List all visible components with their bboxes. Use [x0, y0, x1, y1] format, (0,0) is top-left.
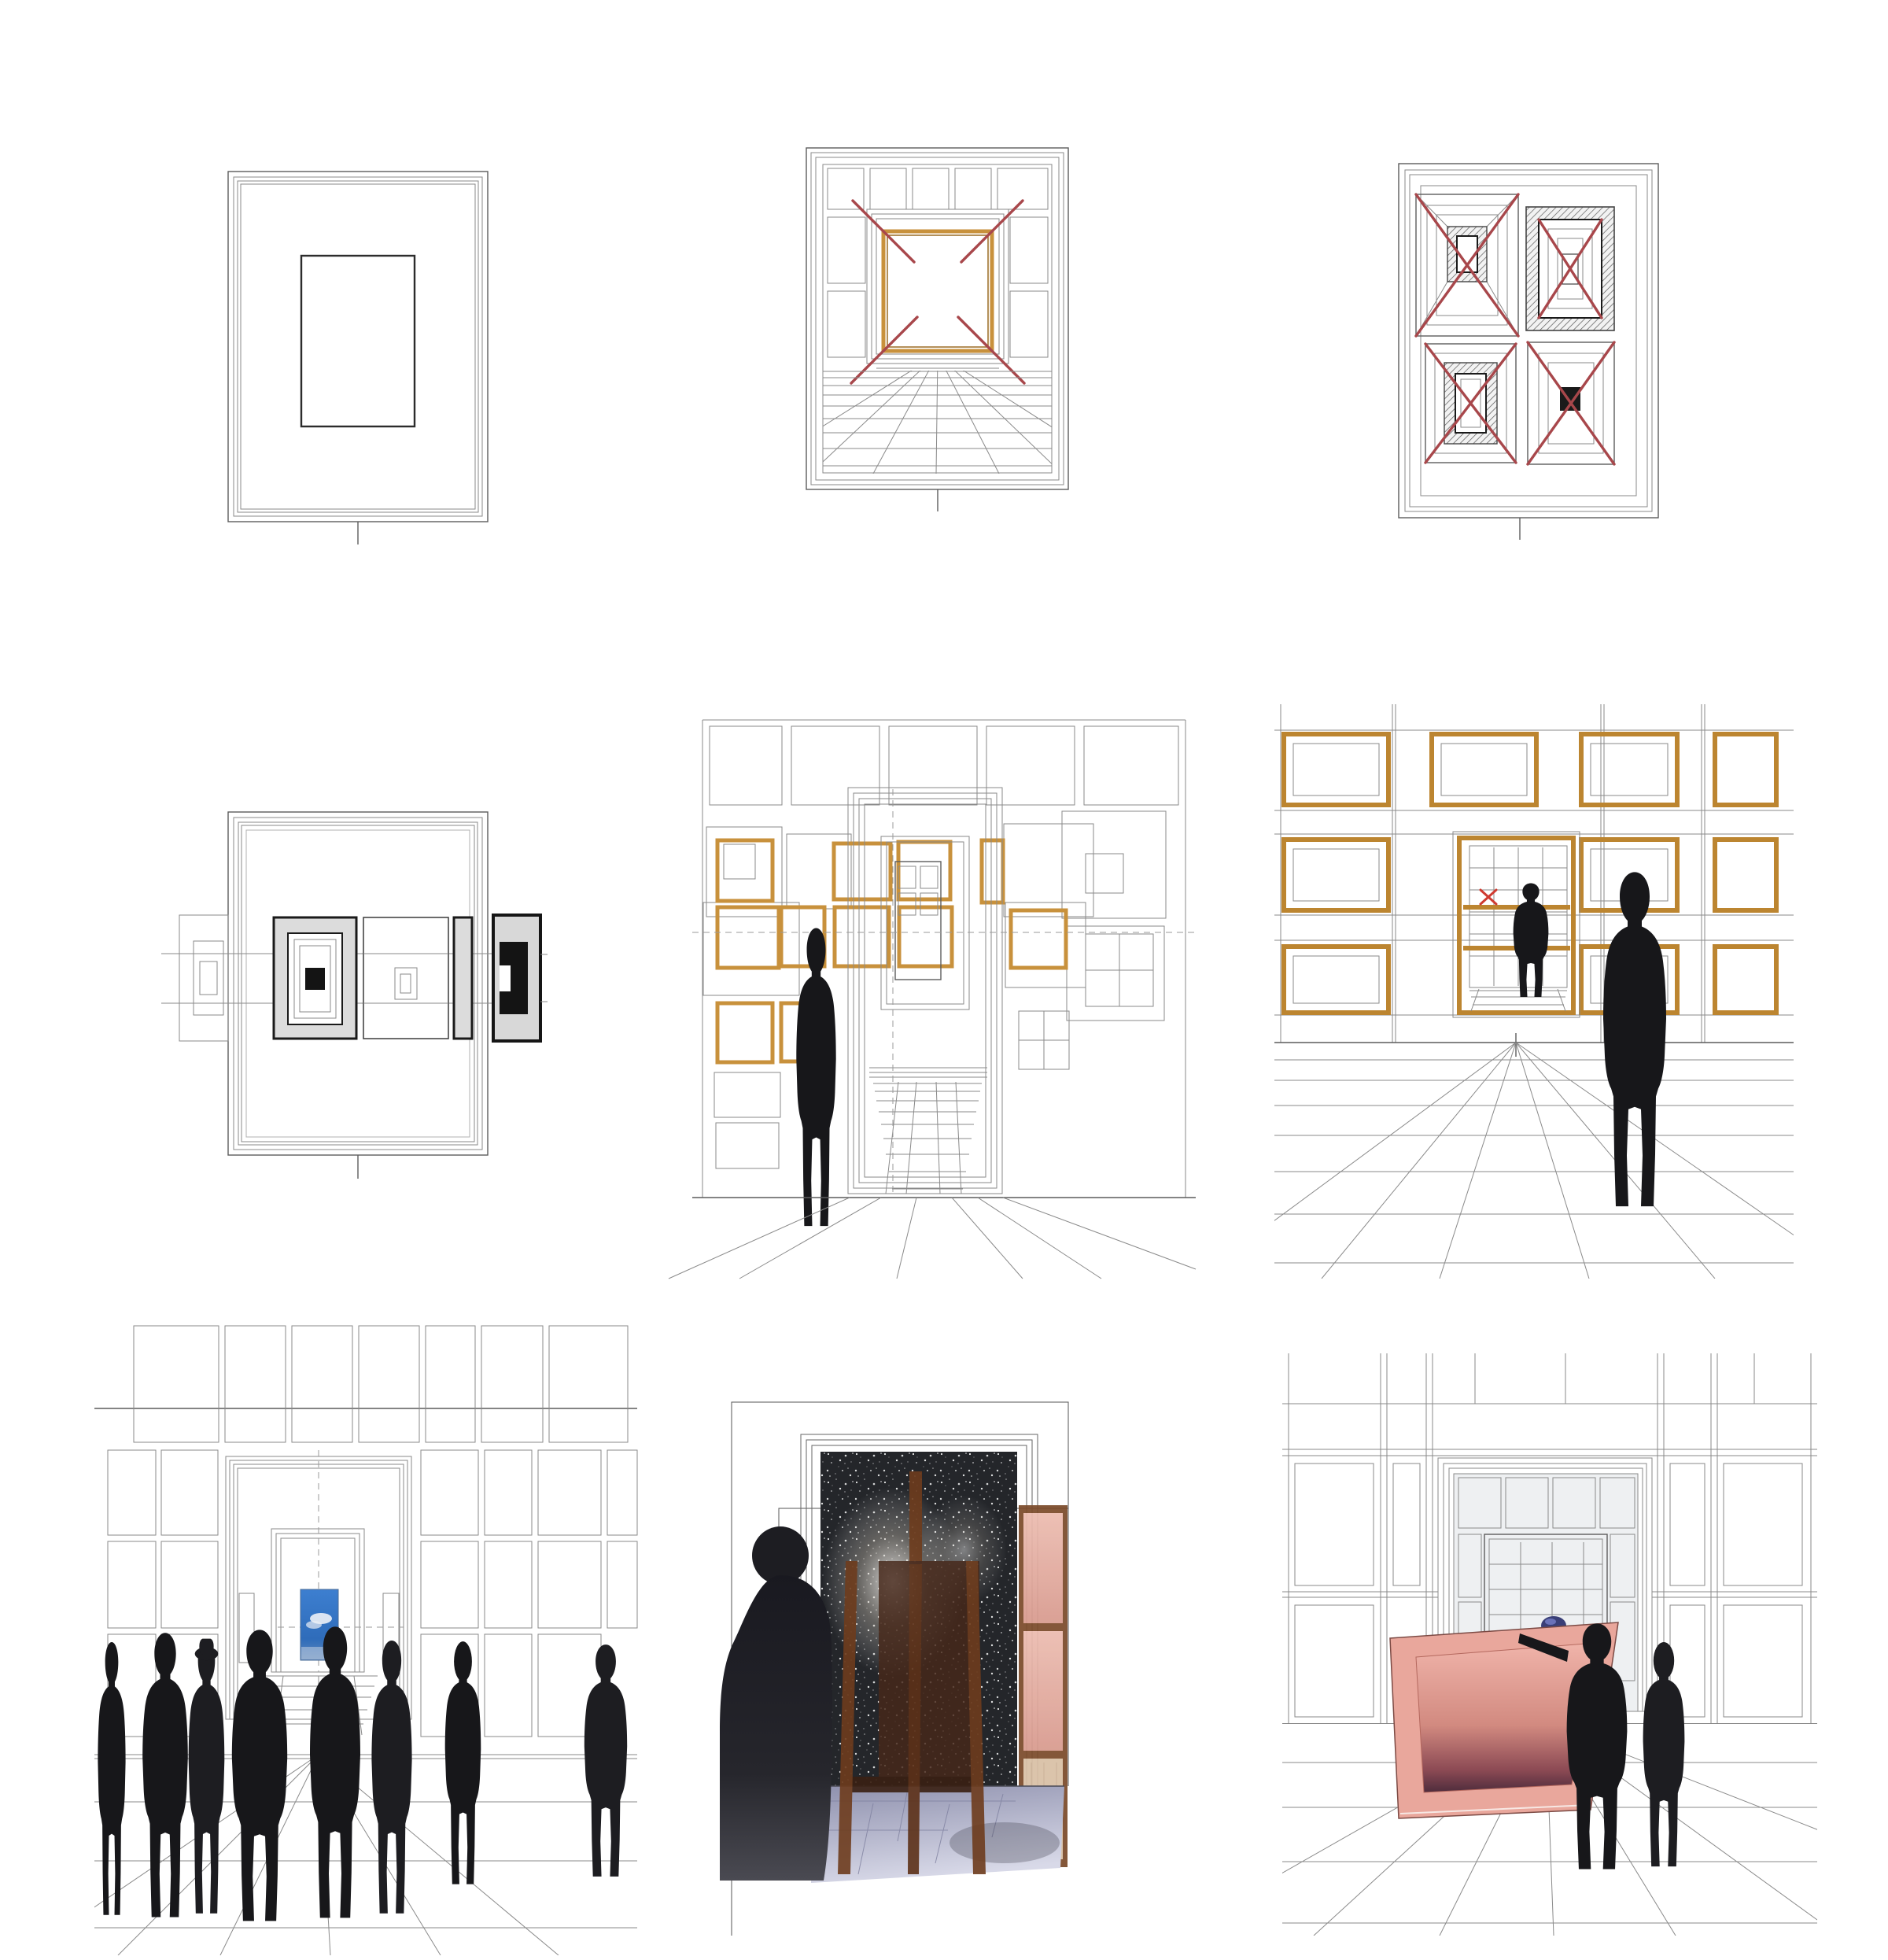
panel-perspective-gold-frame — [779, 118, 1101, 559]
foreground-floor — [669, 1198, 1196, 1279]
study-board — [0, 0, 1888, 1960]
construction-axes — [692, 789, 1196, 1196]
visitor-silhouette — [584, 1644, 627, 1877]
viewer-silhouette — [720, 1526, 832, 1881]
panel-crowd-blue-painting — [94, 1357, 637, 1955]
doorway-casing — [848, 788, 1002, 1194]
panel-frame-elevation — [189, 142, 535, 559]
red-corner-diagonals — [851, 201, 1024, 383]
border — [806, 148, 1068, 489]
visitor-silhouette — [232, 1630, 287, 1921]
visitor-silhouette-hat — [189, 1639, 225, 1914]
panel-four-frame-studies — [1369, 134, 1699, 559]
tiled-floor — [1196, 1033, 1857, 1279]
panel-gallery-two-visitors — [1274, 704, 1794, 1279]
handler-silhouette-woman — [1643, 1642, 1685, 1866]
visitor-silhouette — [142, 1633, 188, 1917]
crowd-silhouettes — [98, 1626, 627, 1921]
canvas-back — [879, 1561, 979, 1791]
frame-outline — [228, 172, 488, 522]
band-gray-strip — [454, 917, 472, 1039]
band-gray-panel — [274, 917, 356, 1039]
corridor-floor — [1469, 989, 1567, 1011]
corridor — [869, 836, 987, 1194]
inner-artwork-void — [301, 256, 415, 426]
gold-frames — [1284, 734, 1776, 1013]
doorway — [1453, 832, 1580, 1017]
panel-elevation-frame-band — [142, 795, 582, 1196]
gold-frames — [717, 840, 1066, 1062]
panel-carrying-pink-painting — [1282, 1353, 1817, 1936]
panel-gallery-lone-visitor — [692, 704, 1196, 1279]
foreground-visitor-silhouette — [1603, 872, 1666, 1206]
band-white-panel — [363, 917, 448, 1039]
study-bottom-right — [1528, 342, 1614, 464]
study-top-right — [1526, 207, 1614, 330]
study-top-left — [1416, 194, 1518, 336]
visitor-silhouette — [371, 1641, 411, 1914]
floor-shadow — [950, 1822, 1060, 1863]
band-black-panel — [493, 915, 548, 1041]
panel-easel-starry-night — [712, 1393, 1172, 1959]
study-bottom-left — [1425, 344, 1516, 463]
visitor-silhouette-woman — [445, 1641, 481, 1884]
visitor-silhouette — [98, 1642, 125, 1915]
visitor-silhouette — [310, 1626, 360, 1918]
visitor-silhouette — [796, 928, 835, 1227]
wall-elevation — [702, 720, 1186, 1198]
band-outline-panel — [179, 915, 228, 1041]
wall-panels — [828, 168, 1048, 357]
